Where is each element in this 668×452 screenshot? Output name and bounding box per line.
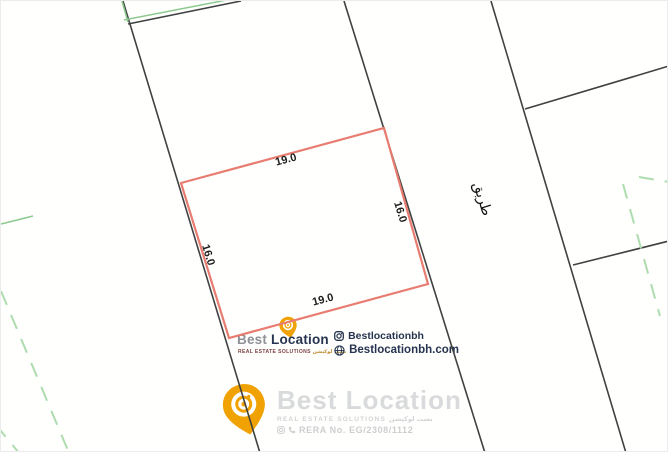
plot-map-image: Best Location REAL ESTATE SOLUTIONS بست … bbox=[0, 0, 668, 452]
green-dashed-boundary bbox=[1, 291, 69, 452]
green-parcel-edge bbox=[124, 1, 237, 20]
green-dashed-boundary bbox=[623, 184, 660, 316]
highlighted-plot-outline bbox=[181, 128, 428, 338]
parcel-divider-right-upper bbox=[525, 66, 668, 109]
road-boundary-left bbox=[344, 1, 485, 452]
green-dashed-boundary bbox=[639, 177, 668, 182]
road-boundary-right bbox=[491, 1, 626, 452]
parcel-boundary-topleft bbox=[128, 1, 241, 24]
green-boundary-left bbox=[1, 216, 33, 224]
parcel-linework bbox=[1, 1, 668, 452]
parcel-divider-right-lower bbox=[573, 241, 668, 265]
parcel-boundary-left bbox=[123, 1, 260, 452]
green-dashed-boundary bbox=[1, 425, 19, 452]
